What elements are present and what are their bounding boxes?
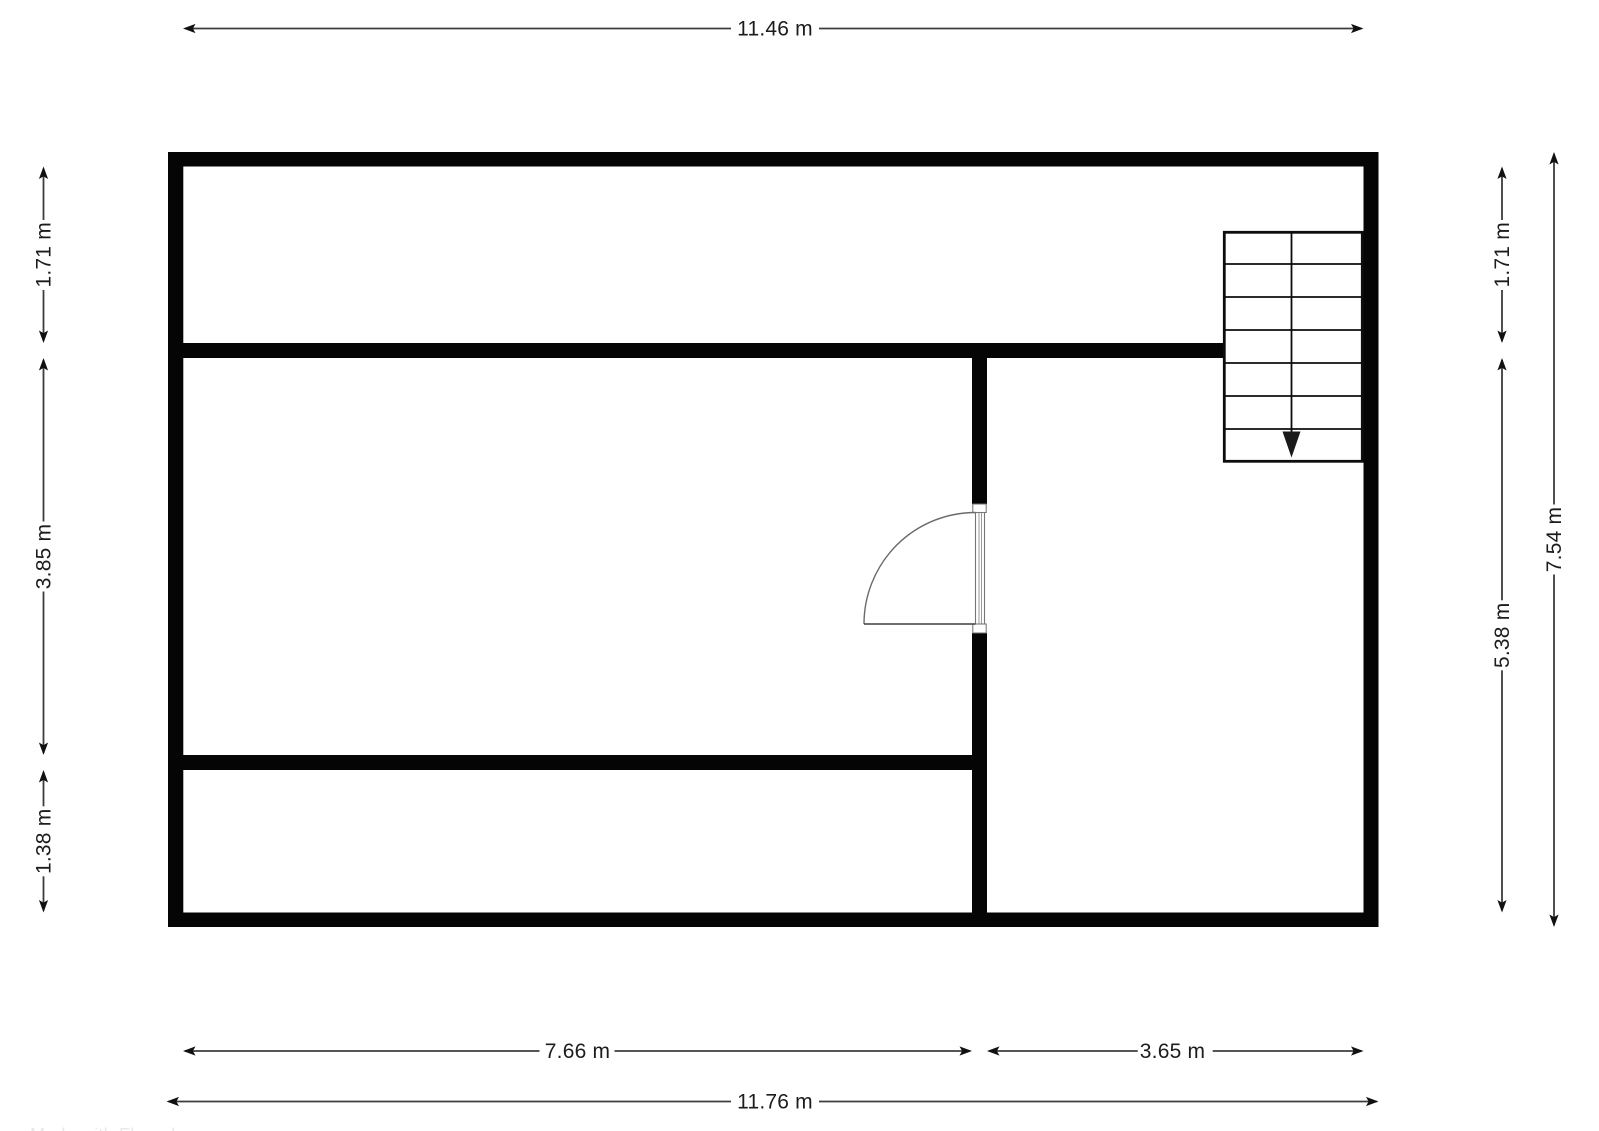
svg-text:Made with Floorplanner.com: Made with Floorplanner.com: [30, 1125, 261, 1131]
svg-text:3.85 m: 3.85 m: [33, 524, 56, 589]
svg-text:1.71 m: 1.71 m: [33, 222, 56, 287]
svg-text:7.54 m: 7.54 m: [1543, 507, 1566, 572]
svg-text:11.76 m: 11.76 m: [737, 1091, 813, 1114]
svg-text:1.38 m: 1.38 m: [33, 809, 56, 874]
svg-text:1.71 m: 1.71 m: [1491, 222, 1514, 287]
svg-text:11.46 m: 11.46 m: [737, 18, 813, 41]
svg-text:3.65 m: 3.65 m: [1140, 1040, 1205, 1063]
svg-text:5.38 m: 5.38 m: [1491, 603, 1514, 668]
svg-text:7.66 m: 7.66 m: [545, 1040, 610, 1063]
